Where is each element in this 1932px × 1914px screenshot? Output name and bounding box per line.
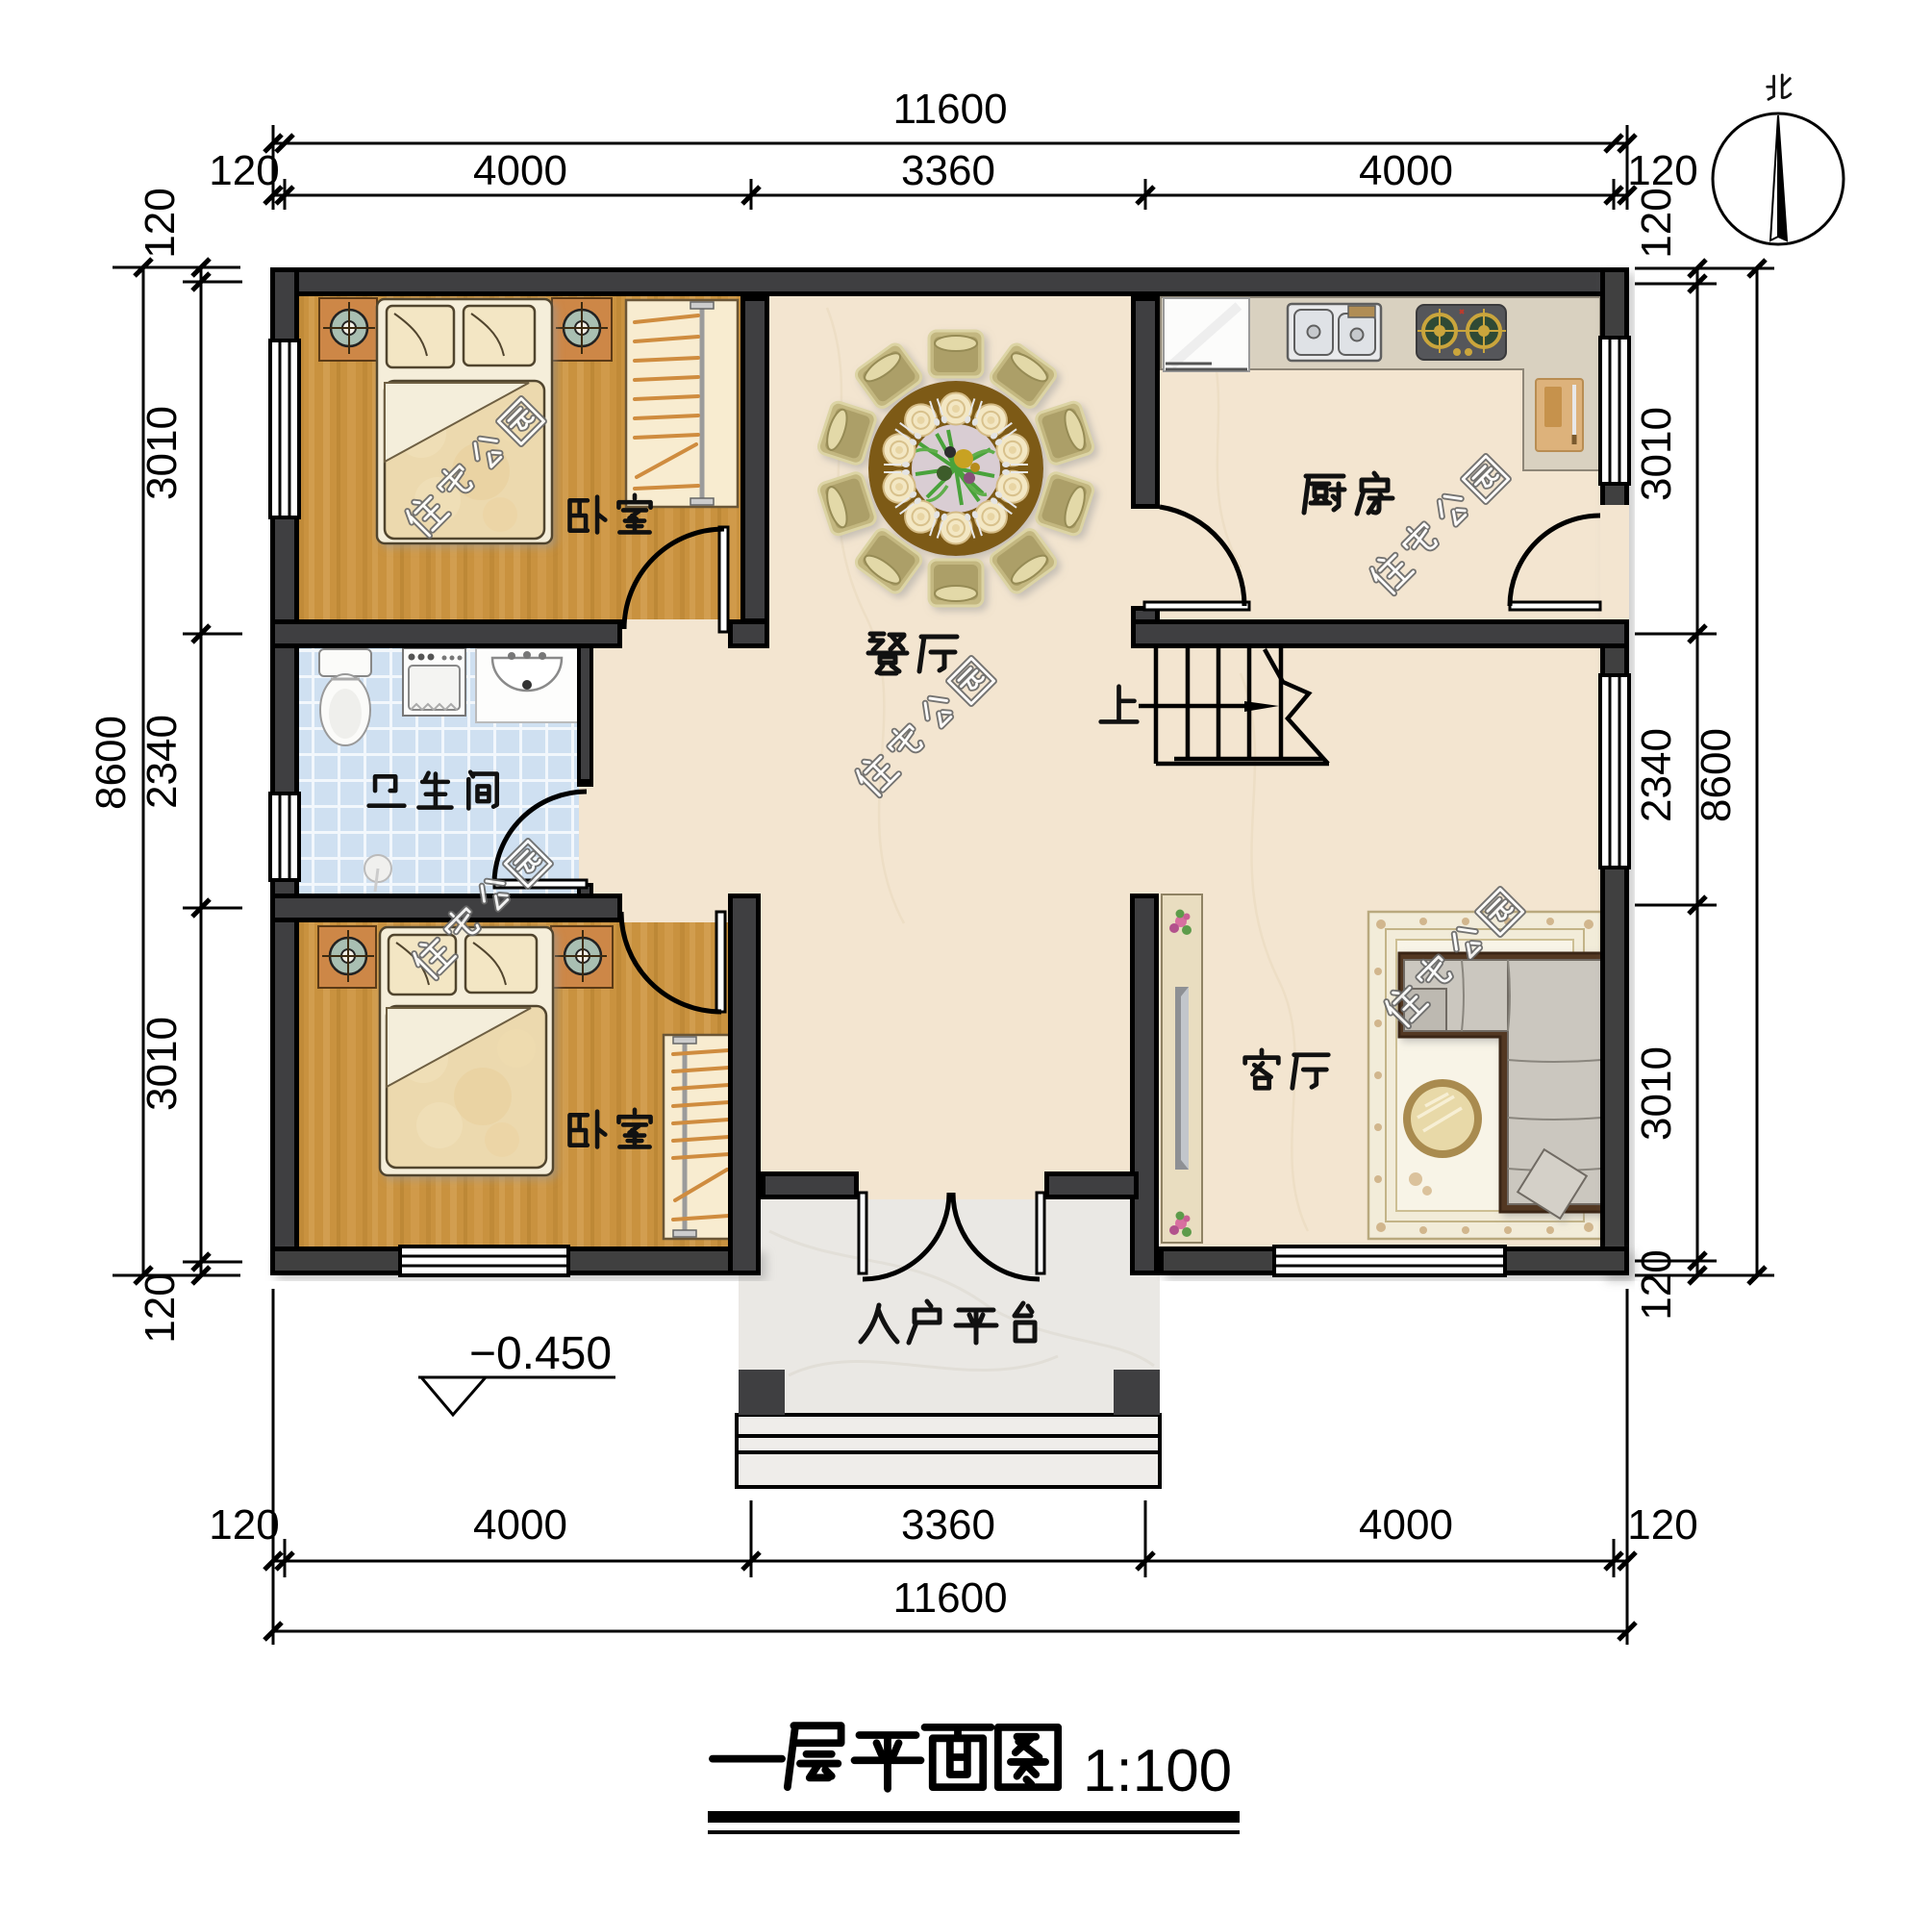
svg-text:1:100: 1:100 (1083, 1738, 1232, 1804)
svg-text:120: 120 (209, 147, 279, 194)
svg-text:8600: 8600 (88, 716, 135, 810)
svg-text:3360: 3360 (901, 147, 995, 194)
svg-text:2340: 2340 (138, 715, 186, 809)
svg-text:4000: 4000 (473, 147, 567, 194)
svg-text:120: 120 (1627, 1501, 1697, 1549)
svg-text:11600: 11600 (892, 86, 1007, 133)
svg-text:4000: 4000 (473, 1501, 567, 1549)
svg-text:4000: 4000 (1359, 147, 1453, 194)
svg-text:2340: 2340 (1633, 728, 1680, 822)
svg-text:11600: 11600 (892, 1574, 1007, 1622)
svg-text:8600: 8600 (1693, 728, 1740, 822)
svg-text:120: 120 (137, 1272, 184, 1343)
svg-text:120: 120 (1633, 1249, 1680, 1320)
svg-text:3360: 3360 (901, 1501, 995, 1549)
svg-text:3010: 3010 (1633, 1046, 1680, 1141)
svg-text:3010: 3010 (138, 406, 186, 500)
svg-text:120: 120 (137, 188, 184, 258)
svg-text:120: 120 (209, 1501, 279, 1549)
svg-text:4000: 4000 (1359, 1501, 1453, 1549)
svg-text:3010: 3010 (1633, 407, 1680, 501)
svg-text:120: 120 (1633, 188, 1680, 258)
svg-text:−0.450: −0.450 (469, 1328, 612, 1379)
svg-text:3010: 3010 (138, 1017, 186, 1111)
svg-text:120: 120 (1627, 147, 1697, 194)
